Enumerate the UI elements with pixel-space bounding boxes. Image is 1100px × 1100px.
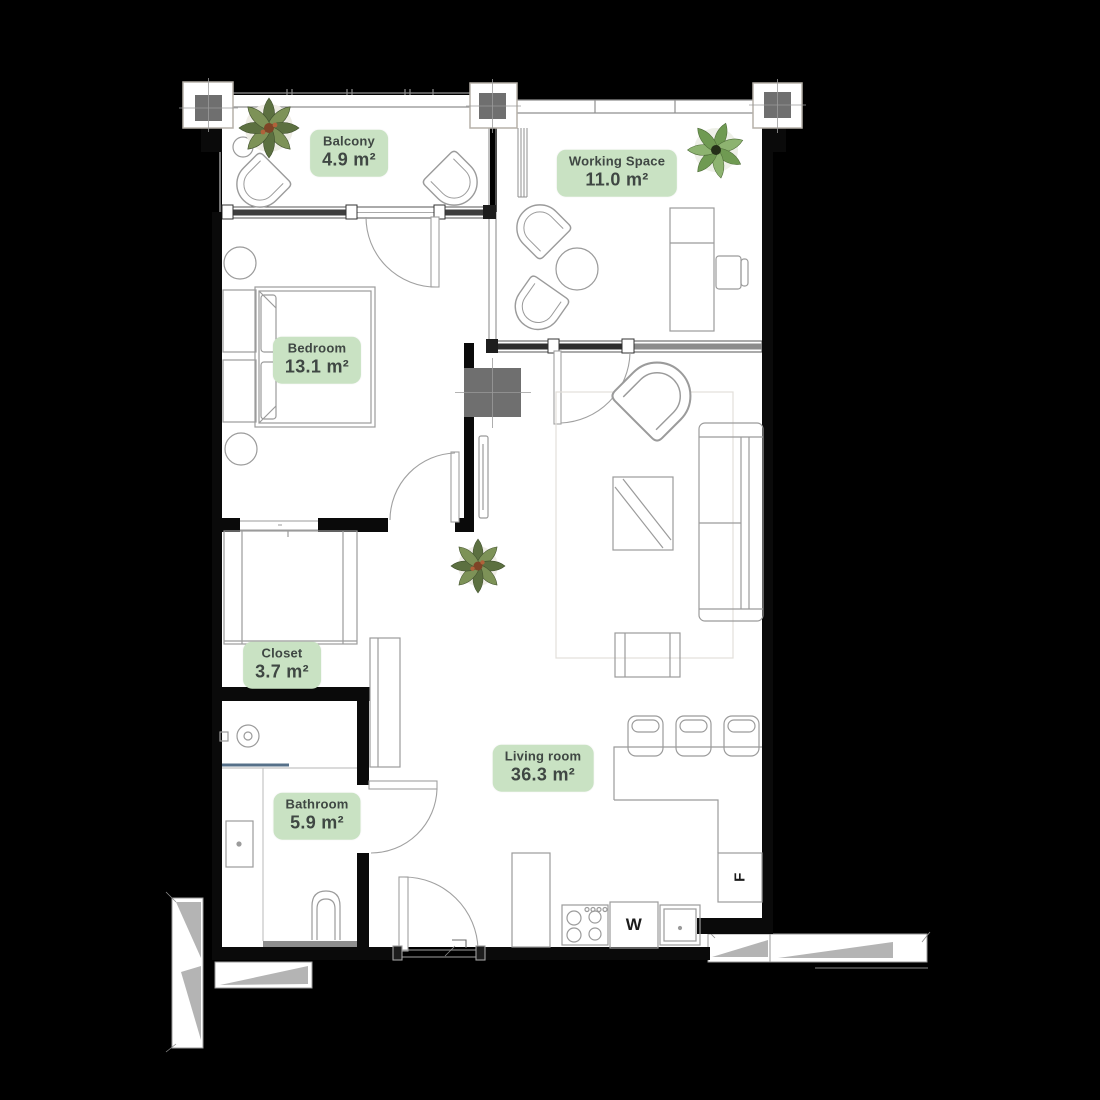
room-area: 11.0 m² xyxy=(569,170,665,191)
room-label-bathroom: Bathroom 5.9 m² xyxy=(274,793,361,840)
room-area: 3.7 m² xyxy=(255,662,309,683)
column-top-left xyxy=(179,78,238,132)
plant-living-room-icon xyxy=(451,539,505,593)
column-top-right xyxy=(749,79,806,133)
room-label-balcony: Balcony 4.9 m² xyxy=(310,130,388,177)
living-room-window-band xyxy=(486,339,762,353)
plant-balcony-icon xyxy=(239,98,299,158)
washer-label: W xyxy=(626,915,643,935)
room-label-closet: Closet 3.7 m² xyxy=(243,642,321,689)
room-name: Working Space xyxy=(569,155,665,170)
room-name: Bedroom xyxy=(285,342,349,357)
floor-plan-canvas: Balcony 4.9 m² Working Space 11.0 m² Bed… xyxy=(0,0,1100,1100)
room-name: Bathroom xyxy=(286,798,349,813)
room-name: Closet xyxy=(255,647,309,662)
room-area: 4.9 m² xyxy=(322,150,376,171)
room-area: 13.1 m² xyxy=(285,357,349,378)
fridge-label: F xyxy=(732,872,749,882)
room-name: Balcony xyxy=(322,135,376,150)
column-top-middle xyxy=(466,79,521,133)
room-label-working-space: Working Space 11.0 m² xyxy=(557,150,677,197)
room-name: Living room xyxy=(505,750,582,765)
room-label-bedroom: Bedroom 13.1 m² xyxy=(273,337,361,384)
room-label-living-room: Living room 36.3 m² xyxy=(493,745,594,792)
room-area: 5.9 m² xyxy=(286,813,349,834)
floor-plan-linework xyxy=(0,0,1100,1100)
room-area: 36.3 m² xyxy=(505,765,582,786)
